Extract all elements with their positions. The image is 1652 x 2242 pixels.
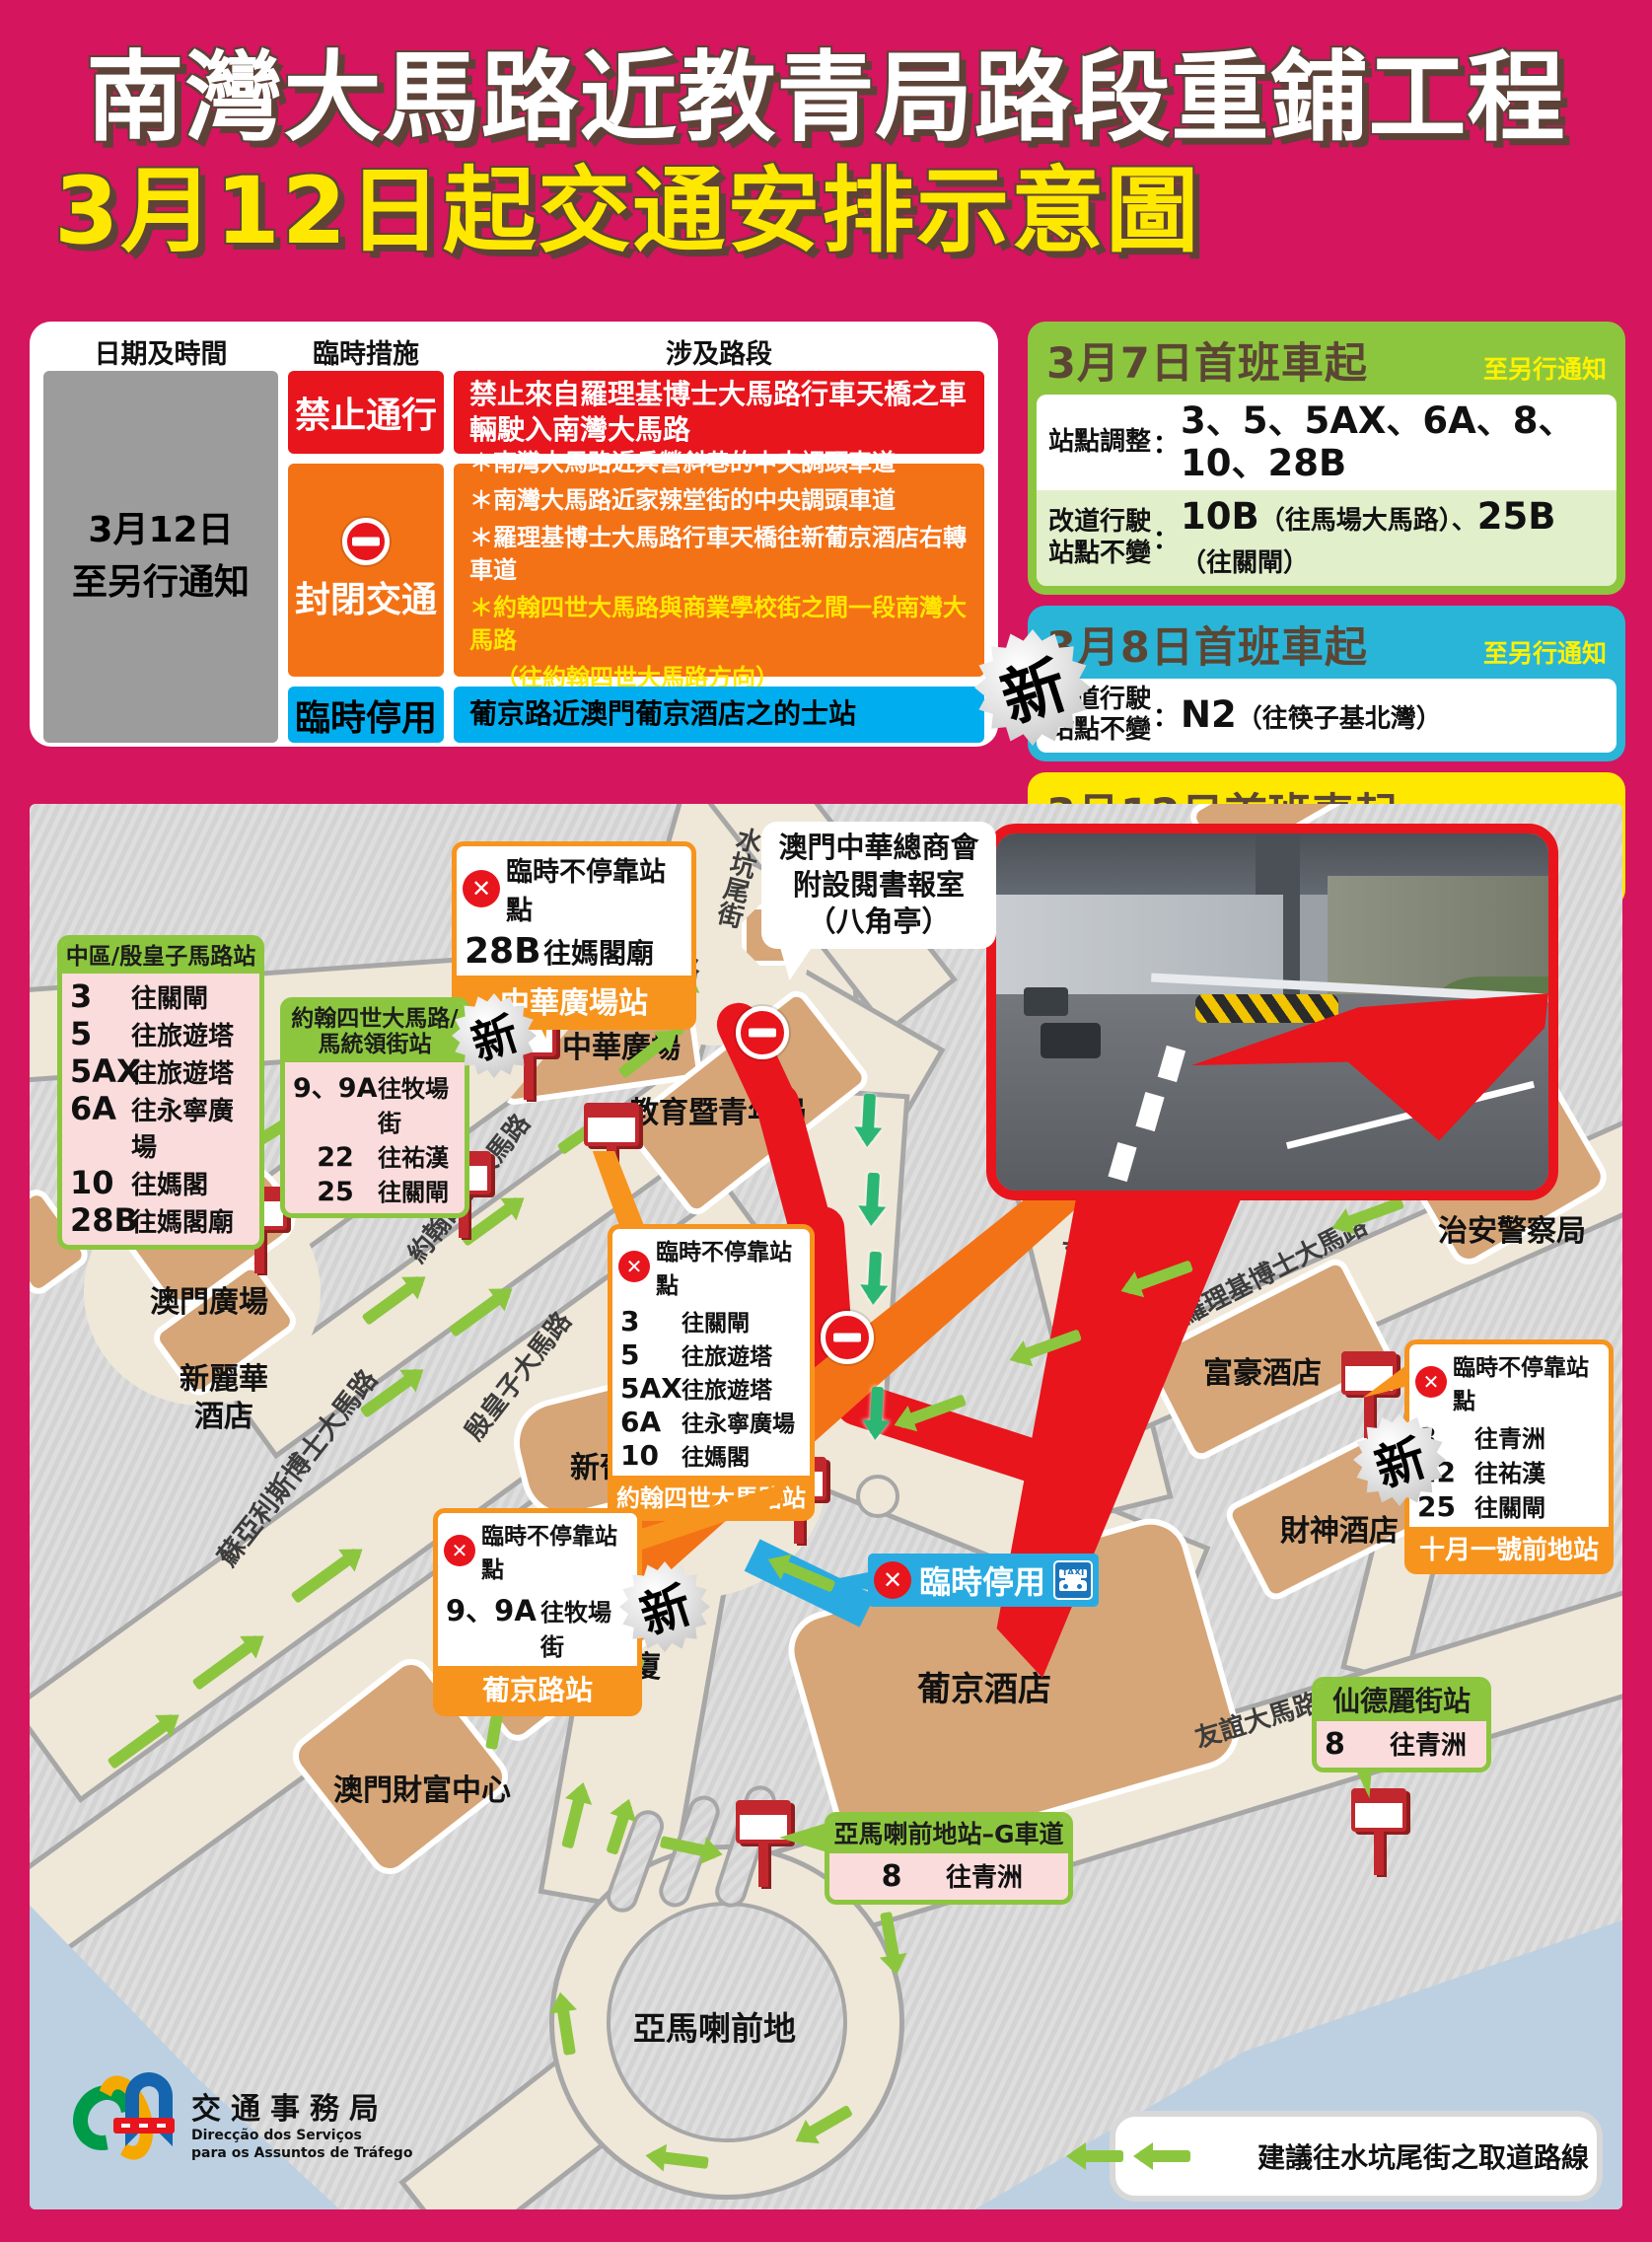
x-icon <box>463 870 500 907</box>
new-badge: 新 <box>1353 1413 1446 1506</box>
no-entry-icon <box>342 518 390 565</box>
measure-close: 封閉交通 <box>288 464 444 677</box>
photo-car <box>1041 1023 1102 1058</box>
traffic-island <box>856 1475 899 1518</box>
route-row: 5AX往旅遊塔 <box>620 1371 802 1405</box>
x-icon <box>444 1535 475 1566</box>
legend-text: 建議往水坑尾街之取道路線 <box>1257 2136 1589 2176</box>
route-row: 6A往永寧廣場 <box>70 1090 251 1164</box>
notice-mar7: 3月7日首班車起 至另行通知 站點調整 ： 3、5、5AX、6A、8、10、28… <box>1028 322 1625 595</box>
page-subtitle: 3月12日起交通安排示意圖 <box>54 136 1200 270</box>
date-range-cell: 3月12日 至另行通知 <box>43 371 278 743</box>
x-icon <box>618 1251 650 1282</box>
chamber-bubble: 澳門中華總商會 附設閱書報室 （八角亭） <box>761 822 996 949</box>
route-row: 22往祐漢 <box>293 1138 457 1173</box>
route-row: 10往媽閣 <box>70 1164 251 1201</box>
notice-date: 3月7日首班車起 <box>1046 329 1368 391</box>
dsat-name-zh: 交通事務局 <box>191 2084 412 2128</box>
new-badge: 新 <box>619 1561 710 1652</box>
notice-date: 3月8日首班車起 <box>1046 614 1368 675</box>
notice-row: 站點調整 ： 3、5、5AX、6A、8、10、28B <box>1037 395 1616 490</box>
photo-car <box>1024 987 1068 1016</box>
detour-arrow <box>867 1252 881 1300</box>
notice-mar8: 3月8日首班車起 至另行通知 改道行駛 站點不變 ： N2（往筷子基北灣） <box>1028 606 1625 760</box>
label-macau-square: 澳門廣場 <box>150 1277 268 1321</box>
col-header-measure: 臨時措施 <box>288 332 444 371</box>
label-regal: 富豪酒店 <box>1203 1348 1322 1392</box>
label-sintra: 新麗華酒店 <box>180 1361 268 1435</box>
label-caishen: 財神酒店 <box>1280 1506 1399 1550</box>
label-fortuna-center: 澳門財富中心 <box>333 1766 511 1809</box>
route-row: 28B往媽閣廟 <box>70 1201 251 1239</box>
measure-ban: 禁止通行 <box>288 371 444 454</box>
col-header-roads: 涉及路段 <box>454 332 984 371</box>
detail-close: ＊南灣大馬路近兵營斜巷的中央調頭車道 ＊南灣大馬路近家辣堂街的中央調頭車道 ＊羅… <box>454 464 984 677</box>
notice-until: 至另行通知 <box>1483 350 1607 386</box>
x-icon <box>874 1561 911 1599</box>
taxi-stand-suspended: 臨時停用 TAXI <box>868 1554 1099 1607</box>
table-body: 3月12日 至另行通知 禁止通行 禁止來自羅理基博士大馬路行車天橋之車輛駛入南灣… <box>43 371 984 743</box>
x-icon <box>1415 1366 1447 1398</box>
detail-ban: 禁止來自羅理基博士大馬路行車天橋之車輛駛入南灣大馬路 <box>454 371 984 454</box>
photo-chevron-barrier <box>1195 994 1339 1023</box>
bus-stop-sidonio <box>1351 1788 1406 1875</box>
no-entry-sign <box>821 1311 874 1364</box>
legend-arrow-icon <box>1139 2150 1190 2162</box>
route-row: 9、9A往牧場街 <box>446 1588 629 1662</box>
route-row: 9、9A往牧場街 <box>293 1066 457 1138</box>
col-header-date: 日期及時間 <box>43 332 278 371</box>
new-badge: 新 <box>974 629 1091 746</box>
route-row: 3往關閘 <box>70 977 251 1015</box>
closure-photo-inset <box>986 824 1558 1200</box>
notice-row: 改道行駛 站點不變 ： 10B（往馬場大馬路）、25B（往關閘） <box>1037 490 1616 586</box>
callout-lisboa-road-stop: 臨時不停靠站點 9、9A往牧場街 葡京路站 <box>433 1508 642 1716</box>
legend-arrow-icon <box>1072 2150 1123 2162</box>
route-row: 5AX往旅遊塔 <box>70 1052 251 1090</box>
route-row: 3往關閘 <box>620 1304 802 1338</box>
bus-stop-amaral-g <box>736 1800 791 1887</box>
callout-amaral-g: 亞馬喇前地站–G車道 8往青洲 <box>825 1812 1073 1905</box>
route-row: 25往關閘 <box>293 1173 457 1207</box>
callout-joao4-station: 約翰四世大馬路/ 馬統領街站 9、9A往牧場街 22往祐漢 25往關閘 <box>280 997 469 1218</box>
route-row: 6A往永寧廣場 <box>620 1405 802 1438</box>
route-row: 8往青洲 <box>1417 1419 1601 1454</box>
traffic-map: 中華廣場 教育暨青年局 澳門廣場 新麗華酒店 新葡京酒店 中國銀行大廈 澳門財富… <box>30 804 1622 2209</box>
label-police: 治安警察局 <box>1438 1206 1586 1250</box>
dsat-name-pt: Direcção dos Serviços para os Assuntos d… <box>191 2128 412 2162</box>
traffic-notice-poster: 南灣大馬路近教青局路段重鋪工程 3月12日起交通安排示意圖 日期及時間 臨時措施… <box>0 0 1652 2242</box>
route-row: 5往旅遊塔 <box>620 1338 802 1371</box>
route-row: 28B往媽閣廟 <box>465 931 683 972</box>
table-header-row: 日期及時間 臨時措施 涉及路段 <box>43 331 984 371</box>
callout-sidonio: 仙德麗街站 8往青洲 <box>1312 1677 1491 1772</box>
label-rotunda: 亞馬喇前地 <box>633 2002 796 2050</box>
measures-table: 日期及時間 臨時措施 涉及路段 3月12日 至另行通知 禁止通行 禁止來自羅理基… <box>30 322 998 747</box>
callout-central-district: 中區/殷皇子馬路站 3往關閘 5往旅遊塔 5AX往旅遊塔 6A往永寧廣場 10往… <box>57 935 264 1250</box>
route-row: 5往旅遊塔 <box>70 1015 251 1052</box>
label-lisboa: 葡京酒店 <box>917 1662 1051 1710</box>
route-row: 8往青洲 <box>1325 1725 1478 1762</box>
dsat-logo: 交通事務局 Direcção dos Serviços para os Assu… <box>74 2066 412 2180</box>
legend: 建議往水坑尾街之取道路線 <box>1110 2111 1603 2202</box>
route-row: 8往青洲 <box>837 1857 1060 1894</box>
taxi-icon: TAXI <box>1053 1560 1093 1600</box>
notice-until: 至另行通知 <box>1483 634 1607 670</box>
notice-row: 改道行駛 站點不變 ： N2（往筷子基北灣） <box>1037 679 1616 752</box>
detail-suspend: 葡京路近澳門葡京酒店之的士站 <box>454 687 984 743</box>
route-row: 10往媽閣 <box>620 1438 802 1472</box>
no-entry-sign <box>736 1006 789 1059</box>
route-row: 25往關閘 <box>1417 1488 1601 1523</box>
new-badge: 新 <box>452 993 537 1078</box>
detour-arrow <box>861 1094 875 1142</box>
callout-joao4-stop: 臨時不停靠站點 3往關閘 5往旅遊塔 5AX往旅遊塔 6A往永寧廣場 10往媽閣… <box>608 1224 815 1521</box>
dsat-logo-mark <box>74 2066 178 2180</box>
measure-suspend: 臨時停用 <box>288 687 444 743</box>
detour-arrow <box>865 1173 879 1221</box>
